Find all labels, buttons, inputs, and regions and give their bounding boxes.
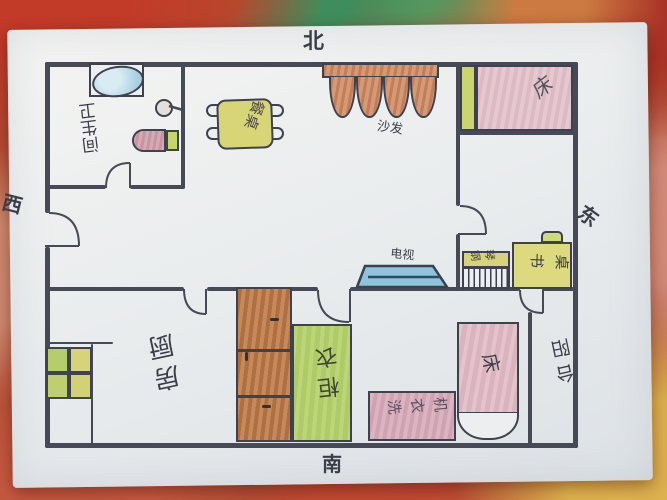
stove-burner xyxy=(46,373,69,399)
cabinet-divider xyxy=(236,395,292,398)
wardrobe-label: 衣柜 xyxy=(310,340,336,401)
stove-burner xyxy=(69,373,92,399)
bathroom-door-leaf xyxy=(129,163,131,188)
washing-machine-label: 洗衣机 xyxy=(382,400,452,419)
wall-ne-bedroom-south xyxy=(456,131,578,135)
ne-bedroom-door-leaf xyxy=(458,233,486,235)
stove xyxy=(46,347,92,399)
wall-balcony-west xyxy=(528,312,532,448)
sofa-label: 沙发 xyxy=(376,120,404,136)
entrance-door-leaf xyxy=(45,245,79,247)
desk-label: 书桌 xyxy=(523,257,574,275)
cabinet-handle xyxy=(262,405,271,408)
kitchen-door-leaf xyxy=(205,289,207,314)
wall-middle-a xyxy=(45,287,184,291)
kitchen-counter-edge-top xyxy=(45,342,113,344)
stove-burner xyxy=(69,347,92,373)
compass-north: 北 xyxy=(303,31,324,52)
toilet-tank xyxy=(166,130,179,151)
cabinet xyxy=(236,287,292,442)
bathtub xyxy=(89,63,144,97)
wall-bathroom-south-a xyxy=(45,185,106,189)
wall-east xyxy=(573,62,578,448)
wall-ne-bedroom-west-b xyxy=(456,234,460,291)
wall-bathroom-east xyxy=(181,62,185,189)
balcony-label: 阳台 xyxy=(545,333,573,388)
ne-bed xyxy=(476,65,573,131)
bathtub-basin xyxy=(90,63,146,101)
compass-south: 南 xyxy=(322,454,342,474)
wall-bathroom-south-b xyxy=(130,185,185,189)
south-bed-label: 床 xyxy=(478,352,501,375)
cabinet-handle xyxy=(270,318,279,321)
shower-head-icon xyxy=(155,99,173,117)
cabinet-handle xyxy=(245,352,248,361)
tv-label: 电视 xyxy=(390,247,415,261)
wall-west-upper xyxy=(45,62,50,213)
piano-keys xyxy=(462,267,510,289)
wall-south xyxy=(45,443,578,448)
piano-label: 钢琴 xyxy=(468,251,497,263)
balcony-door-leaf xyxy=(542,289,544,313)
stove-burner xyxy=(46,347,69,373)
photo-of-floorplan: 北 南 西 东 卫生间 餐桌 沙发 床 钢琴 xyxy=(0,0,667,500)
ne-bedside-cabinet xyxy=(460,65,476,131)
toilet xyxy=(132,129,166,152)
sofa-back xyxy=(322,63,439,78)
bedroom-door-leaf xyxy=(349,289,351,322)
